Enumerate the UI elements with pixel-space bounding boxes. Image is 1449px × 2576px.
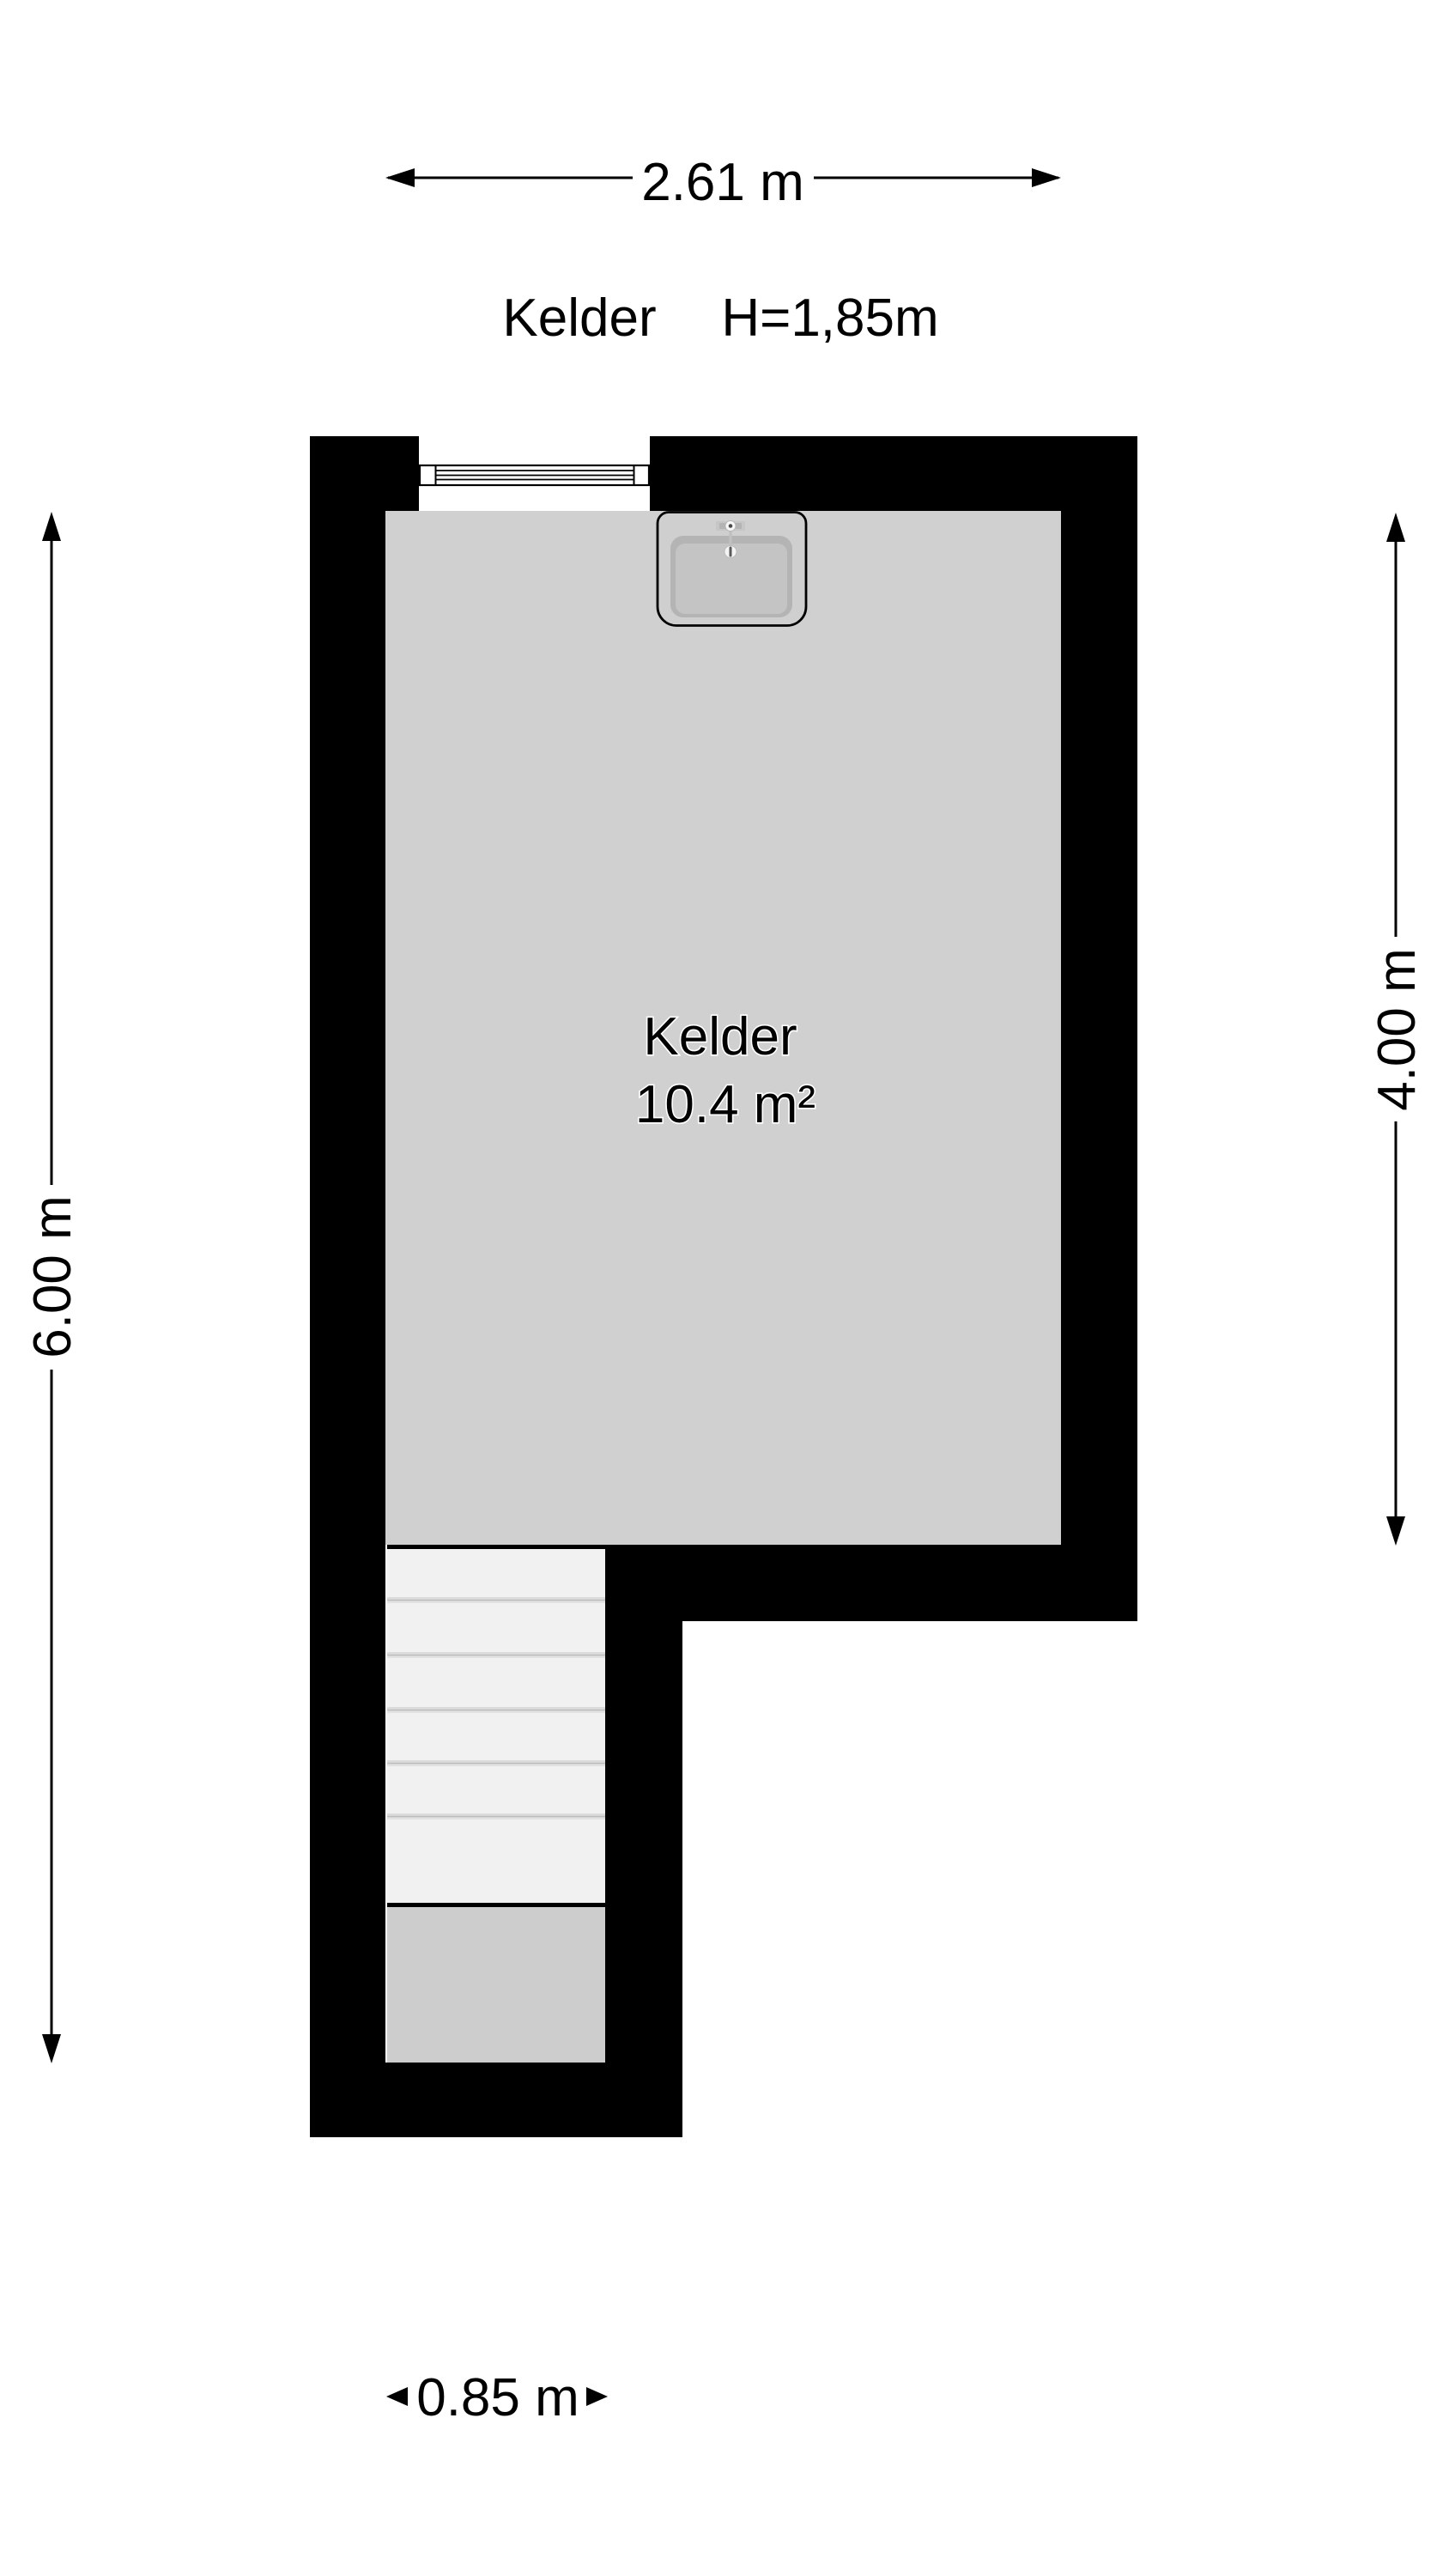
svg-text:0.85 m: 0.85 m <box>416 2368 579 2427</box>
svg-text:Kelder: Kelder <box>502 289 656 348</box>
svg-text:10.4 m²: 10.4 m² <box>635 1075 815 1134</box>
svg-text:2.61 m: 2.61 m <box>641 153 804 212</box>
svg-text:6.00 m: 6.00 m <box>23 1195 82 1358</box>
svg-text:Kelder: Kelder <box>643 1007 797 1066</box>
svg-text:4.00 m: 4.00 m <box>1367 948 1427 1111</box>
svg-text:H=1,85m: H=1,85m <box>721 289 938 348</box>
